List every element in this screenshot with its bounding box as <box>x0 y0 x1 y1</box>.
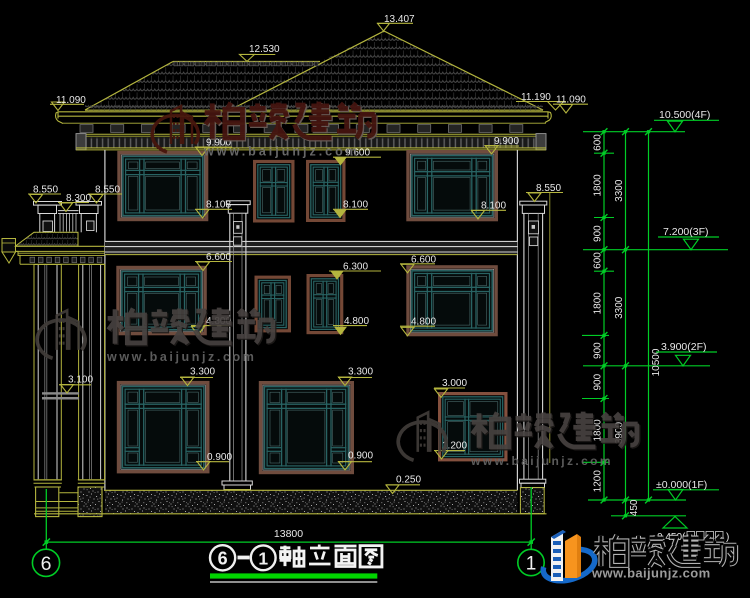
svg-text:450: 450 <box>629 499 640 516</box>
svg-text:8.550: 8.550 <box>95 185 120 196</box>
svg-text:www.baijunjz.com: www.baijunjz.com <box>203 145 360 159</box>
svg-text:13800: 13800 <box>274 528 303 540</box>
svg-text:): ) <box>726 532 729 543</box>
svg-text:4.800: 4.800 <box>411 317 436 328</box>
svg-text:3300: 3300 <box>614 179 625 202</box>
svg-text:8.108: 8.108 <box>206 200 231 211</box>
svg-text:6.300: 6.300 <box>343 262 368 273</box>
svg-text:1200: 1200 <box>593 470 604 493</box>
svg-text:3.300: 3.300 <box>190 367 215 378</box>
svg-text:1800: 1800 <box>593 292 604 315</box>
svg-text:3.100: 3.100 <box>68 375 93 386</box>
svg-text:7.200(3F): 7.200(3F) <box>663 226 709 238</box>
svg-text:6: 6 <box>218 549 228 569</box>
svg-text:11.090: 11.090 <box>556 95 586 106</box>
svg-text:4.800: 4.800 <box>344 316 369 327</box>
svg-text:0.250: 0.250 <box>396 475 421 486</box>
svg-text:1: 1 <box>258 548 268 568</box>
svg-text:8.300: 8.300 <box>66 193 91 204</box>
svg-text:13.407: 13.407 <box>384 14 415 25</box>
svg-text:www.baijunjz.com: www.baijunjz.com <box>470 454 613 468</box>
svg-text:10.500(4F): 10.500(4F) <box>659 109 710 121</box>
svg-text:900: 900 <box>593 373 604 390</box>
svg-text:±0.000(1F): ±0.000(1F) <box>656 479 707 491</box>
svg-text:11.190: 11.190 <box>521 92 551 103</box>
svg-text:8.550: 8.550 <box>536 183 561 194</box>
svg-text:6: 6 <box>41 553 52 575</box>
svg-text:12.530: 12.530 <box>249 44 280 55</box>
svg-text:600: 600 <box>593 252 604 269</box>
svg-text:9.900: 9.900 <box>494 136 519 147</box>
svg-text:900: 900 <box>593 225 604 242</box>
svg-text:1800: 1800 <box>593 174 604 197</box>
svg-text:0.900: 0.900 <box>348 451 373 462</box>
svg-text:3.900(2F): 3.900(2F) <box>661 341 707 353</box>
svg-text:8.550: 8.550 <box>33 185 58 196</box>
svg-text:3300: 3300 <box>614 296 625 319</box>
svg-text:8.100: 8.100 <box>481 201 506 212</box>
svg-text:600: 600 <box>593 134 604 151</box>
svg-text:0.900: 0.900 <box>207 452 232 463</box>
svg-text:3.000: 3.000 <box>442 378 467 389</box>
svg-text:1: 1 <box>526 554 537 575</box>
svg-text:www.baijunjz.com: www.baijunjz.com <box>106 350 256 364</box>
svg-text:6.600: 6.600 <box>411 255 436 266</box>
svg-text:900: 900 <box>593 342 604 359</box>
svg-text:3.300: 3.300 <box>348 367 373 378</box>
svg-text:6.600: 6.600 <box>206 252 231 263</box>
svg-text:www.baijunjz.com: www.baijunjz.com <box>591 566 711 581</box>
svg-text:8.100: 8.100 <box>343 200 368 211</box>
svg-text:11.090: 11.090 <box>56 95 86 106</box>
